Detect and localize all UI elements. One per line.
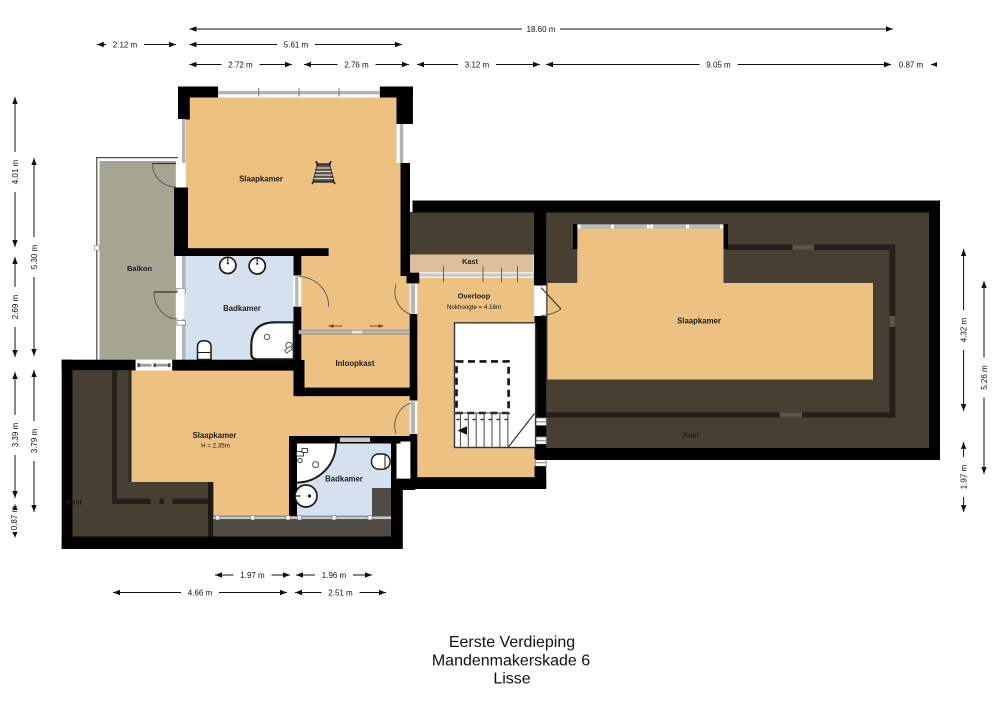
svg-text:5.61 m: 5.61 m: [284, 40, 309, 49]
svg-text:1.96 m: 1.96 m: [322, 571, 347, 580]
svg-text:Inloopkast: Inloopkast: [336, 359, 375, 368]
svg-text:Nokhoogte = 4.16m: Nokhoogte = 4.16m: [447, 304, 501, 311]
svg-text:1.97 m: 1.97 m: [240, 571, 265, 580]
svg-text:0.87 m: 0.87 m: [10, 505, 19, 530]
svg-text:Balkon: Balkon: [127, 264, 152, 273]
svg-text:Kast: Kast: [683, 431, 699, 440]
svg-text:2.12 m: 2.12 m: [113, 40, 138, 49]
svg-text:Slaapkamer: Slaapkamer: [193, 431, 237, 440]
svg-text:Badkamer: Badkamer: [223, 304, 261, 313]
svg-text:H = 2,35m: H = 2,35m: [201, 443, 230, 450]
svg-text:5.30 m: 5.30 m: [30, 244, 39, 269]
svg-text:9.05 m: 9.05 m: [706, 60, 731, 69]
svg-text:Eerste Verdieping: Eerste Verdieping: [449, 634, 575, 651]
svg-text:Overloop: Overloop: [458, 292, 491, 301]
svg-text:2.69 m: 2.69 m: [11, 294, 20, 319]
svg-text:Slaapkamer: Slaapkamer: [239, 175, 283, 184]
svg-text:2.76 m: 2.76 m: [344, 60, 369, 69]
svg-text:Lisse: Lisse: [493, 671, 530, 688]
svg-text:5.26 m: 5.26 m: [980, 365, 989, 390]
svg-text:18.60 m: 18.60 m: [527, 25, 556, 34]
svg-text:2.72 m: 2.72 m: [228, 60, 253, 69]
svg-text:3.79 m: 3.79 m: [30, 428, 39, 453]
svg-text:2.51 m: 2.51 m: [328, 588, 353, 597]
svg-text:Slaapkamer: Slaapkamer: [677, 317, 721, 326]
svg-text:3.39 m: 3.39 m: [11, 422, 20, 447]
svg-text:Mandenmakerskade 6: Mandenmakerskade 6: [432, 653, 590, 670]
svg-text:0.87 m: 0.87 m: [899, 60, 924, 69]
svg-text:Badkamer: Badkamer: [325, 475, 363, 484]
svg-text:4.32 m: 4.32 m: [959, 317, 968, 342]
svg-text:Kast: Kast: [66, 498, 82, 507]
svg-text:1.97 m: 1.97 m: [959, 464, 968, 489]
svg-text:4.66 m: 4.66 m: [188, 588, 213, 597]
svg-text:4.01 m: 4.01 m: [11, 159, 20, 184]
svg-text:Kast: Kast: [462, 257, 478, 266]
svg-text:3.12 m: 3.12 m: [465, 60, 490, 69]
